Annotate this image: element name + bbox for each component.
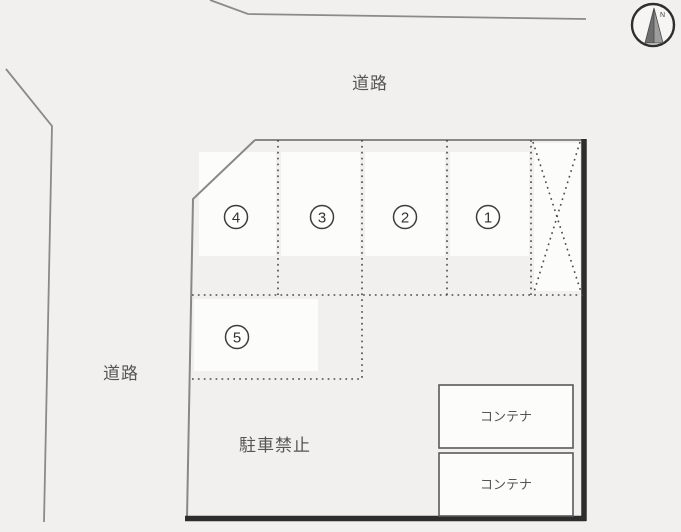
parking-site-plan: 道路 道路 bbox=[0, 0, 681, 532]
road-edge-left bbox=[6, 69, 52, 522]
space-1-number: 1 bbox=[484, 210, 492, 227]
container-box-1: コンテナ bbox=[439, 385, 573, 448]
stall-5-patch bbox=[194, 299, 318, 371]
parking-space-4: 4 bbox=[225, 206, 248, 229]
stall-2-patch bbox=[365, 152, 445, 256]
space-2-number: 2 bbox=[401, 210, 409, 227]
road-label-left: 道路 bbox=[103, 364, 139, 383]
parking-stall-highlights bbox=[194, 143, 580, 371]
container-box-2: コンテナ bbox=[439, 453, 573, 516]
container-1-label: コンテナ bbox=[480, 409, 532, 424]
no-parking-label: 駐車禁止 bbox=[239, 436, 311, 455]
space-5-number: 5 bbox=[233, 330, 241, 347]
parking-space-3: 3 bbox=[311, 206, 334, 229]
parking-space-2: 2 bbox=[394, 206, 417, 229]
stall-4-patch bbox=[199, 152, 276, 256]
site-plan-drawing: 道路 道路 bbox=[0, 0, 681, 532]
stall-3-patch bbox=[281, 152, 360, 256]
road-edge-top bbox=[210, 0, 586, 19]
parking-space-5: 5 bbox=[226, 326, 249, 349]
road-label-top: 道路 bbox=[352, 74, 388, 93]
parking-space-1: 1 bbox=[477, 206, 500, 229]
compass-north-label: N bbox=[660, 12, 665, 19]
container-2-label: コンテナ bbox=[480, 477, 532, 492]
space-4-number: 4 bbox=[232, 210, 240, 227]
compass: N bbox=[632, 4, 674, 46]
space-3-number: 3 bbox=[318, 210, 326, 227]
stall-1-patch bbox=[450, 152, 529, 256]
